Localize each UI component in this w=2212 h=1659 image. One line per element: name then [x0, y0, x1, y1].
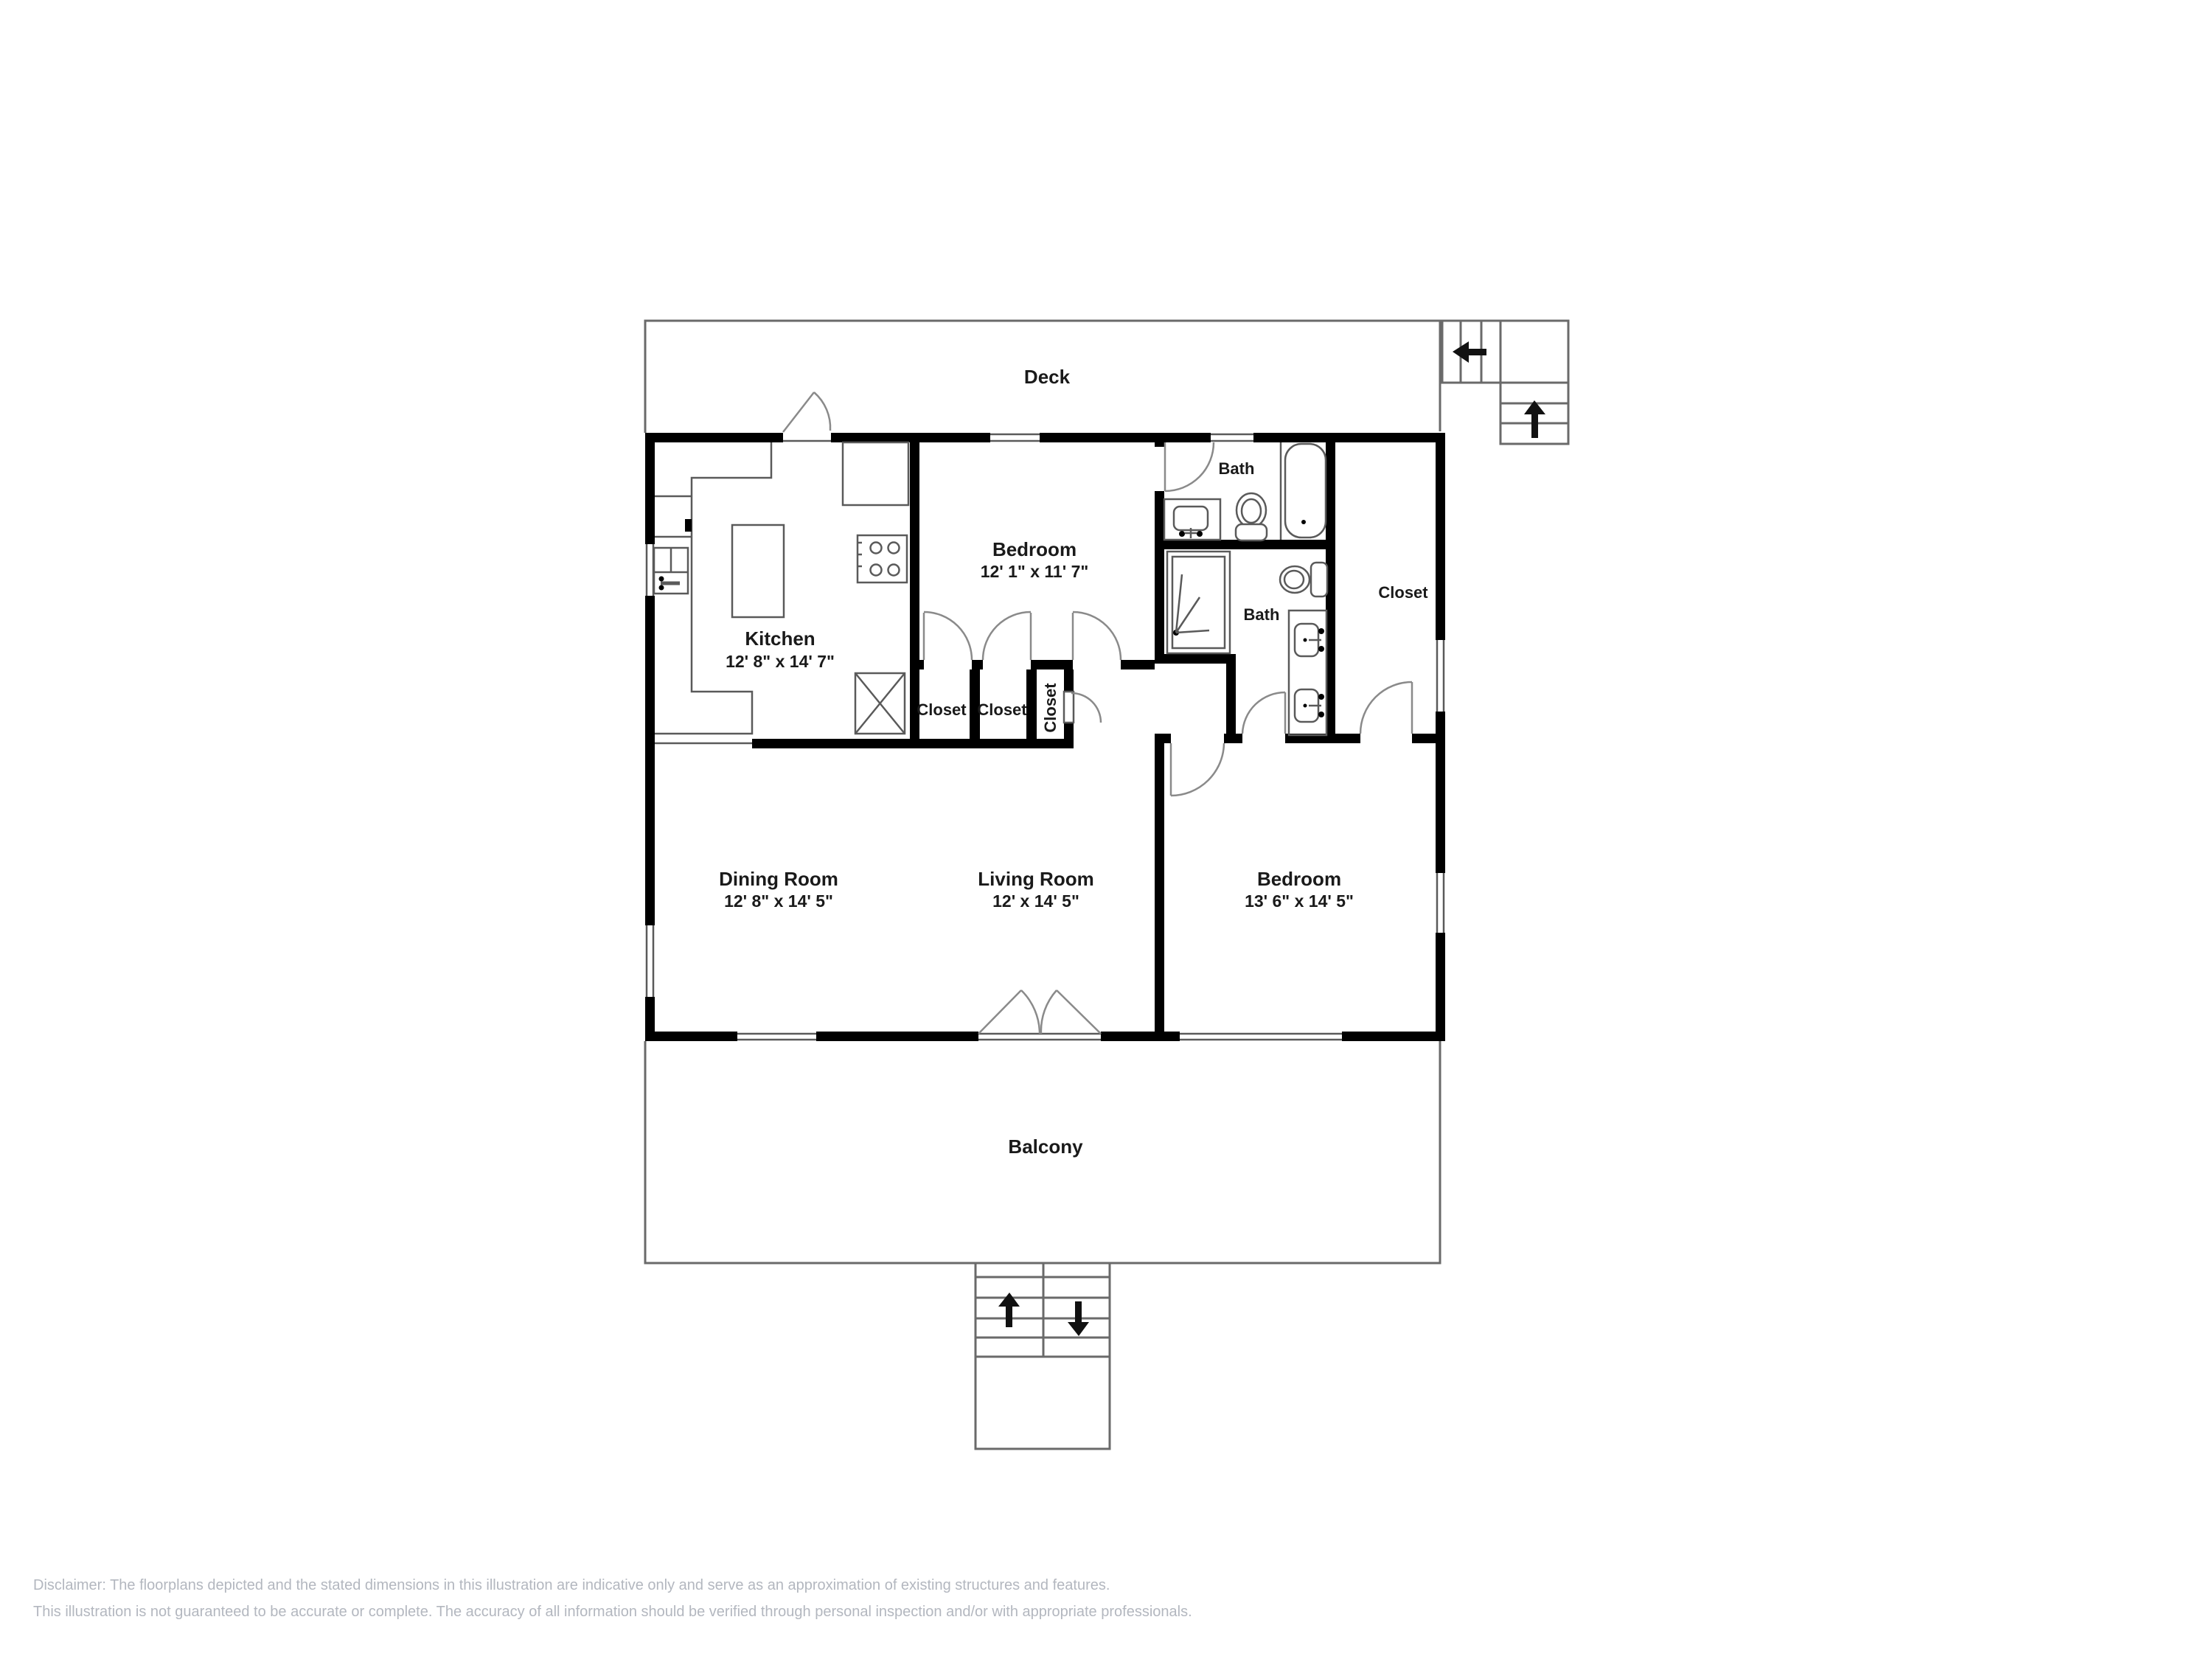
kitchen-sink-icon [654, 548, 688, 594]
bath1-fixtures [1164, 442, 1326, 540]
kitchen-dims: 12' 8" x 14' 7" [726, 652, 835, 671]
bath2-toilet-icon [1280, 563, 1327, 597]
walkin-closet-door [1360, 682, 1412, 734]
bedroom1-door [1073, 612, 1121, 660]
balcony-area: Balcony [645, 1041, 1440, 1263]
closet2-door [983, 612, 1031, 660]
closet1-label: Closet [917, 700, 967, 719]
living-room-dims: 12' x 14' 5" [992, 891, 1079, 911]
floorplan-page: Deck Balcony [0, 0, 2212, 1659]
dining-room-label: Dining Room [719, 868, 838, 890]
bath2-vanity-icon [1289, 611, 1326, 735]
balcony-label: Balcony [1008, 1135, 1083, 1158]
stairs-up-arrow-icon-top [1524, 400, 1545, 438]
bedroom2-dims: 13' 6" x 14' 5" [1245, 891, 1354, 911]
living-room-label: Living Room [978, 868, 1093, 890]
french-doors [978, 990, 1101, 1034]
refrigerator [843, 442, 908, 505]
bedroom2-door [1171, 743, 1224, 796]
dining-room-dims: 12' 8" x 14' 5" [724, 891, 833, 911]
deck-label: Deck [1024, 366, 1071, 388]
stairs-bottom [975, 1263, 1110, 1449]
deck-area: Deck [645, 321, 1440, 433]
closet3-label: Closet [1041, 683, 1060, 733]
stove-icon [858, 535, 907, 582]
bath2-fixtures [1167, 552, 1327, 735]
kitchen-fixtures [654, 442, 908, 743]
floorplan-drawing: Deck Balcony [0, 0, 2212, 1659]
bath2-door [1242, 692, 1285, 734]
closet3-door [1064, 692, 1101, 723]
closet2-label: Closet [977, 700, 1027, 719]
disclaimer-line2: This illustration is not guaranteed to b… [33, 1604, 1192, 1620]
closet1-door [924, 612, 972, 660]
bedroom1-dims: 12' 1" x 11' 7" [981, 562, 1089, 581]
exterior-stairs-top-right [1442, 321, 1568, 444]
disclaimer: Disclaimer: The floorplans depicted and … [33, 1577, 1192, 1620]
pantry-xbox [855, 673, 905, 734]
bath2-label: Bath [1244, 605, 1280, 624]
bath1-toilet-icon [1236, 493, 1267, 540]
deck-door [783, 392, 830, 432]
bedroom2-label: Bedroom [1257, 868, 1341, 890]
bathtub-icon [1285, 444, 1326, 538]
kitchen-island [732, 525, 784, 617]
bath1-door [1165, 442, 1214, 491]
kitchen-label: Kitchen [745, 627, 815, 650]
room-labels: Kitchen 12' 8" x 14' 7" Bedroom 12' 1" x… [719, 459, 1428, 911]
disclaimer-line1: Disclaimer: The floorplans depicted and … [33, 1577, 1110, 1593]
bath1-label: Bath [1219, 459, 1255, 478]
shower-icon [1167, 552, 1230, 653]
walkin-closet-label: Closet [1378, 583, 1428, 602]
bath1-sink-icon [1164, 499, 1220, 540]
bedroom1-label: Bedroom [992, 538, 1077, 560]
